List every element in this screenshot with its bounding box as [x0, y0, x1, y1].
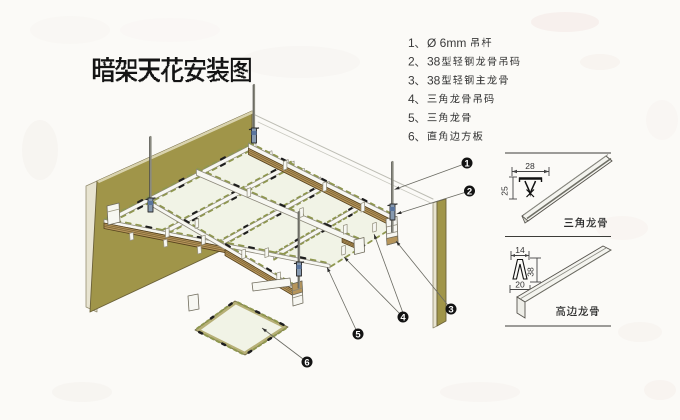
svg-text:6: 6	[408, 129, 415, 143]
svg-text:5: 5	[408, 111, 415, 125]
svg-text:25: 25	[500, 186, 510, 196]
svg-text:Ø 6mm: Ø 6mm	[427, 36, 466, 50]
svg-text:6: 6	[304, 357, 309, 368]
svg-text:38: 38	[526, 267, 536, 277]
svg-text:2: 2	[408, 55, 415, 69]
svg-text:2: 2	[467, 186, 472, 197]
svg-text:4: 4	[400, 312, 406, 323]
svg-text:4: 4	[408, 92, 415, 106]
svg-text:38: 38	[427, 73, 441, 87]
svg-text:3: 3	[448, 304, 453, 315]
svg-text:20: 20	[515, 280, 525, 290]
svg-text:1: 1	[408, 36, 415, 50]
svg-text:5: 5	[355, 329, 361, 340]
svg-text:14: 14	[515, 245, 525, 255]
svg-text:28: 28	[525, 161, 535, 171]
svg-text:1: 1	[464, 158, 470, 169]
svg-text:38: 38	[427, 55, 441, 69]
svg-text:3: 3	[408, 73, 415, 87]
